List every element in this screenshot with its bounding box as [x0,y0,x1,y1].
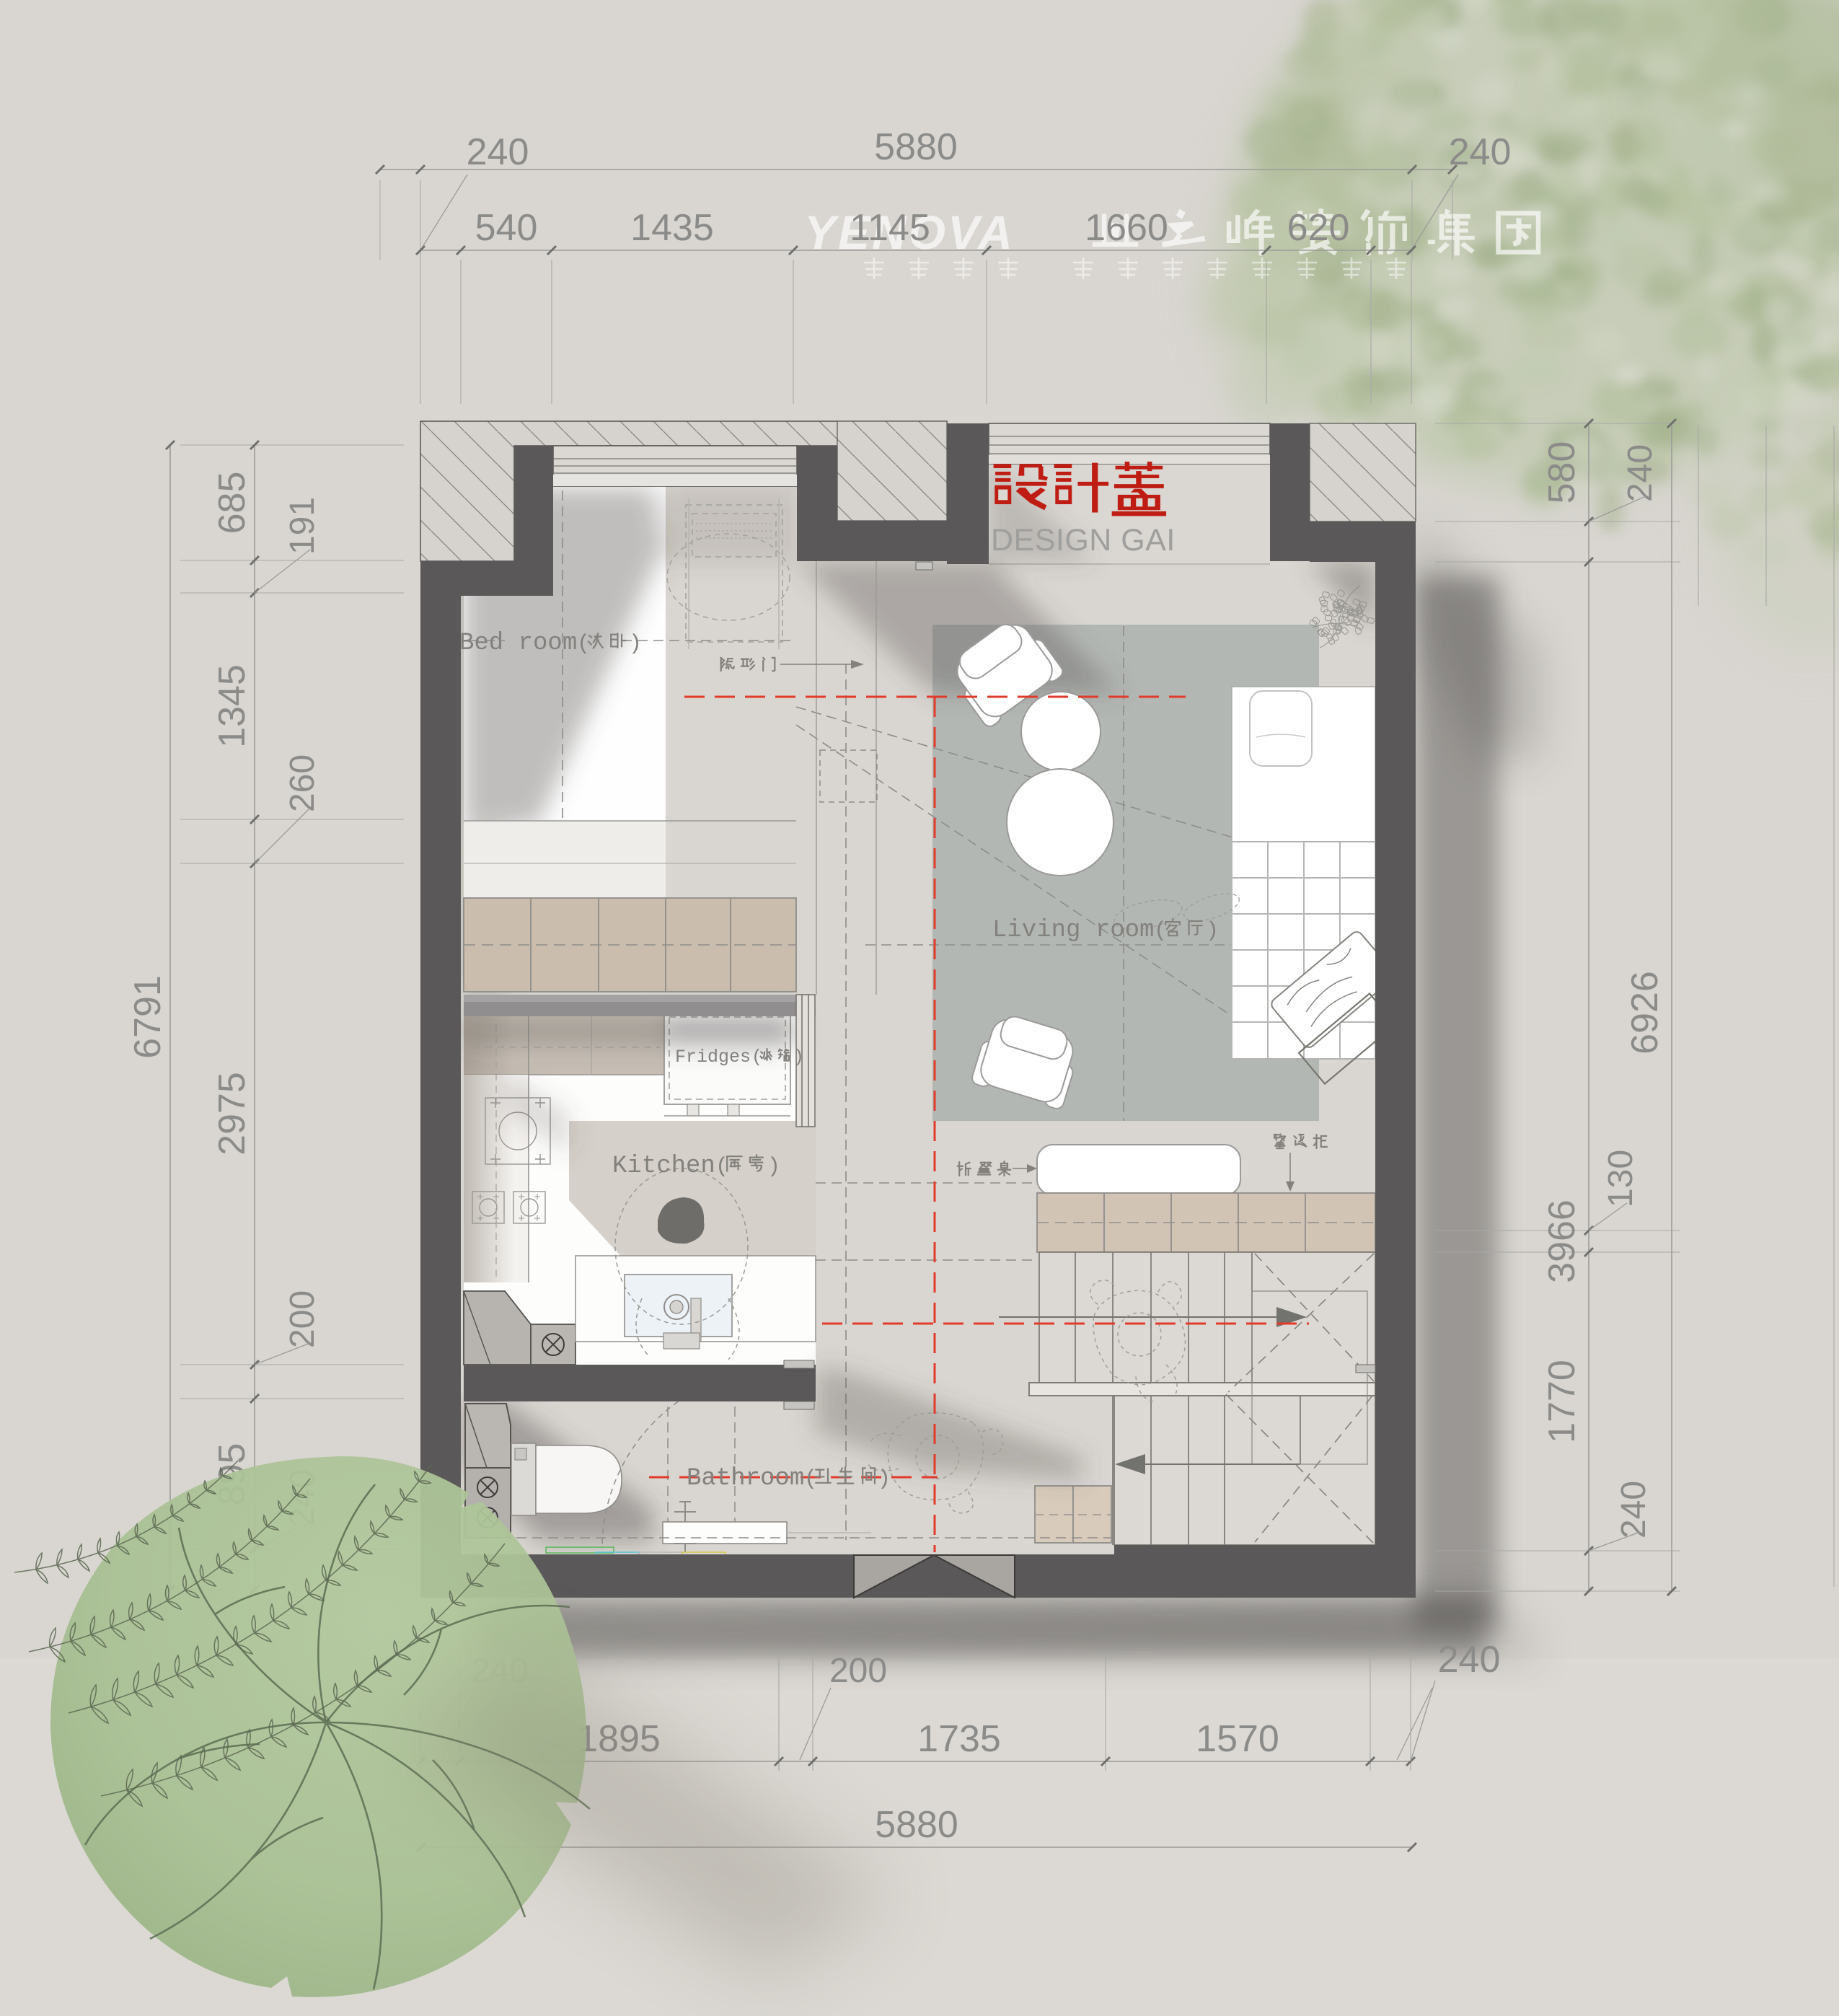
svg-text:6791: 6791 [127,975,169,1059]
svg-text:240: 240 [467,131,529,173]
svg-text:5880: 5880 [874,126,958,168]
svg-text:): ) [878,1467,891,1492]
svg-text:Bed room: Bed room [459,630,577,657]
svg-text:6926: 6926 [1624,971,1666,1055]
svg-text:1770: 1770 [1541,1360,1583,1443]
svg-text:): ) [793,1047,804,1068]
svg-text:200: 200 [829,1652,887,1690]
svg-text:2975: 2975 [211,1072,253,1156]
svg-text:(: ( [577,632,590,656]
svg-text:): ) [629,632,642,656]
svg-text:240: 240 [1438,1639,1501,1681]
svg-text:Kitchen: Kitchen [612,1153,715,1180]
svg-text:): ) [1206,919,1219,943]
svg-text:3966: 3966 [1541,1200,1583,1283]
svg-text:580: 580 [1541,441,1583,504]
svg-text:540: 540 [475,207,538,249]
svg-text:DESIGN GAI: DESIGN GAI [991,523,1176,558]
svg-text:1735: 1735 [917,1718,1001,1760]
svg-text:240: 240 [1615,1481,1653,1539]
svg-text:240: 240 [1621,444,1659,502]
svg-text:130: 130 [1602,1150,1640,1207]
svg-text:Living room: Living room [992,917,1154,944]
svg-text:200: 200 [283,1290,322,1348]
svg-text:191: 191 [283,497,322,555]
svg-text:(: ( [804,1467,817,1492]
svg-text:240: 240 [1449,131,1512,173]
svg-text:1435: 1435 [630,207,714,249]
svg-text:620: 620 [1287,207,1350,249]
svg-text:685: 685 [211,472,253,534]
svg-text:Fridges: Fridges [675,1047,751,1068]
svg-text:Bathroom: Bathroom [687,1465,804,1492]
svg-text:1660: 1660 [1085,207,1168,249]
svg-text:1145: 1145 [850,207,930,249]
svg-text:): ) [767,1155,780,1179]
svg-text:1570: 1570 [1196,1718,1279,1760]
svg-text:5880: 5880 [875,1804,958,1846]
svg-text:1345: 1345 [211,664,253,748]
svg-text:260: 260 [283,754,322,812]
